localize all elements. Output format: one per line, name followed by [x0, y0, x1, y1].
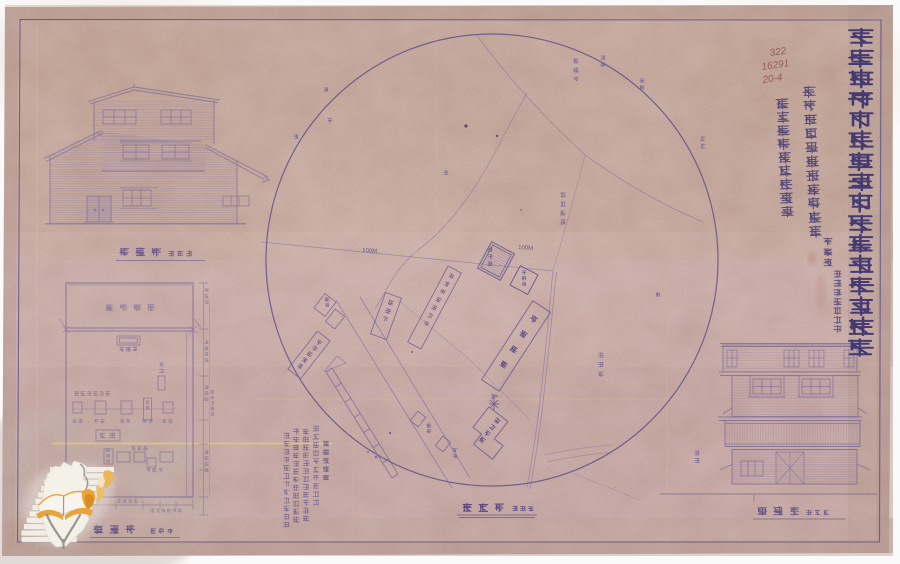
svg-text:100M: 100M: [518, 245, 533, 252]
svg-text:100M: 100M: [362, 248, 377, 255]
